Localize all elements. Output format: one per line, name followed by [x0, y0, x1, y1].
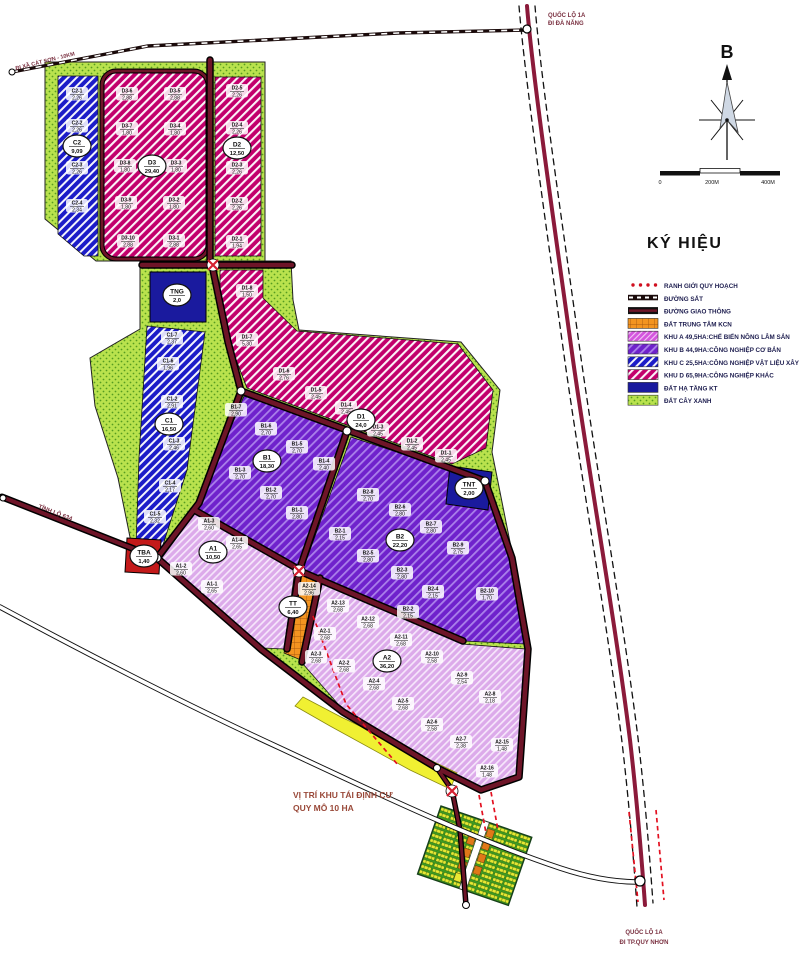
svg-text:24,0: 24,0 — [355, 423, 366, 429]
junction-x-marker — [293, 565, 305, 577]
svg-text:A1: A1 — [209, 546, 218, 553]
svg-text:2,17: 2,17 — [165, 488, 175, 494]
svg-text:2,26: 2,26 — [72, 170, 82, 176]
svg-text:2,0: 2,0 — [173, 298, 181, 304]
parcel-label-D1-1: D1-12,45 — [435, 449, 457, 464]
parcel-label-A2-9: A2-92,54 — [451, 671, 473, 686]
svg-text:D1-6: D1-6 — [279, 369, 290, 375]
svg-text:36,20: 36,20 — [380, 664, 395, 670]
svg-text:A2-1: A2-1 — [320, 629, 331, 635]
svg-text:2,91: 2,91 — [167, 404, 177, 410]
svg-text:A2-4: A2-4 — [369, 679, 380, 685]
parcel-label-A2-4: A2-42,68 — [363, 677, 385, 692]
svg-text:A1-3: A1-3 — [204, 519, 215, 525]
svg-text:1,80: 1,80 — [171, 168, 181, 174]
resettlement-annotation: VỊ TRÍ KHU TÁI ĐỊNH CƯ QUY MÔ 10 HA — [293, 790, 394, 813]
svg-text:2,80: 2,80 — [426, 529, 436, 535]
svg-text:A2-9: A2-9 — [457, 673, 468, 679]
svg-text:B2-2: B2-2 — [403, 607, 414, 613]
parcel-label-C2-4: C2-42,34 — [66, 199, 88, 214]
svg-text:A2-3: A2-3 — [311, 652, 322, 658]
svg-text:2,90: 2,90 — [231, 412, 241, 418]
svg-text:2,65: 2,65 — [207, 589, 217, 595]
ql1a-south-label-2: ĐI TP.QUY NHƠN — [620, 940, 669, 946]
svg-text:C1-7: C1-7 — [167, 333, 178, 339]
parcel-label-D1-5: D1-52,45 — [305, 386, 327, 401]
svg-text:B1-1: B1-1 — [292, 508, 303, 514]
zone-badge-TNT: TNT2,00 — [455, 477, 483, 499]
ql1a-south-label-1: QUỐC LỘ 1A — [625, 928, 663, 936]
legend-item-railway: ĐƯỜNG SẮT — [628, 294, 703, 303]
parcel-label-A2-3: A2-32,68 — [305, 650, 327, 665]
svg-text:1,96: 1,96 — [163, 366, 173, 372]
svg-text:D2-4: D2-4 — [232, 123, 243, 129]
parcel-label-A2-6: A2-62,58 — [421, 718, 443, 733]
legend-item-boundary: RANH GIỚI QUY HOẠCH — [631, 281, 738, 290]
parcel-label-B2-6: B2-62,80 — [389, 503, 411, 518]
scale-bar: 0 200M 400M — [658, 169, 780, 187]
legend-item-infra: ĐẤT HẠ TẦNG KT — [628, 382, 718, 392]
svg-text:2,54: 2,54 — [457, 680, 467, 686]
legend-item-label: ĐƯỜNG GIAO THÔNG — [664, 307, 731, 316]
legend-item-label: KHU A 49,5HA:CHẾ BIẾN NÔNG LÂM SẢN — [664, 331, 790, 341]
parcel-label-A2-15: A2-151,48 — [491, 738, 513, 753]
svg-text:2,68: 2,68 — [363, 624, 373, 630]
parcel-label-A2-5: A2-52,68 — [392, 697, 414, 712]
parcel-label-D2-4: D2-42,26 — [226, 121, 248, 136]
svg-text:C2-3: C2-3 — [72, 163, 83, 169]
svg-text:2,45: 2,45 — [373, 432, 383, 438]
svg-text:2,88: 2,88 — [170, 96, 180, 102]
parcel-label-C1-2: C1-22,91 — [161, 395, 183, 410]
svg-text:1,94: 1,94 — [232, 244, 242, 250]
svg-text:A1-1: A1-1 — [207, 582, 218, 588]
parcel-label-A2-11: A2-112,68 — [390, 633, 412, 648]
svg-text:D3-5: D3-5 — [170, 89, 181, 95]
svg-text:22,20: 22,20 — [393, 543, 408, 549]
svg-text:2,68: 2,68 — [396, 642, 406, 648]
svg-text:A2-8: A2-8 — [485, 692, 496, 698]
parcel-label-A2-7: A2-72,38 — [450, 735, 472, 750]
svg-text:2,88: 2,88 — [123, 243, 133, 249]
parcel-label-B1-3: B1-32,70 — [229, 466, 251, 481]
parcel-label-C1-3: C1-32,46 — [163, 437, 185, 452]
svg-text:D1-7: D1-7 — [242, 335, 253, 341]
legend-item-zoneB: KHU B 44,9HA:CÔNG NGHIỆP CƠ BẢN — [628, 344, 781, 354]
parcel-label-D2-5: D2-52,26 — [226, 84, 248, 99]
legend-item-label: KHU C 25,5HA:CÔNG NGHIỆP VẬT LIỆU XÂY DỰ… — [664, 358, 800, 367]
annotation-line-1: VỊ TRÍ KHU TÁI ĐỊNH CƯ — [293, 790, 394, 800]
svg-text:2,68: 2,68 — [333, 608, 343, 614]
svg-text:D3-7: D3-7 — [122, 124, 133, 130]
svg-text:2,70: 2,70 — [266, 495, 276, 501]
svg-text:2,80: 2,80 — [395, 512, 405, 518]
parcel-label-A2-1: A2-12,68 — [314, 627, 336, 642]
legend-item-road: ĐƯỜNG GIAO THÔNG — [628, 307, 731, 316]
parcel-label-D1-7: D1-75,30 — [236, 333, 258, 348]
svg-text:B2: B2 — [396, 534, 405, 541]
svg-text:2,46: 2,46 — [169, 446, 179, 452]
svg-text:A2-10: A2-10 — [425, 652, 439, 658]
parcel-label-D1-2: D1-22,45 — [401, 437, 423, 452]
legend-item-label: RANH GIỚI QUY HOẠCH — [664, 281, 738, 290]
svg-text:A2-15: A2-15 — [495, 740, 509, 746]
svg-text:2,70: 2,70 — [261, 431, 271, 437]
svg-text:A2-12: A2-12 — [361, 617, 375, 623]
svg-text:10,50: 10,50 — [206, 555, 221, 561]
svg-text:2,76: 2,76 — [279, 376, 289, 382]
svg-text:TBA: TBA — [137, 550, 151, 557]
parcel-label-A1-2: A1-22,60 — [170, 562, 192, 577]
svg-text:B1-2: B1-2 — [266, 488, 277, 494]
map-canvas: C2-12,26C2-22,26C2-32,26C2-42,34D3-62,88… — [0, 0, 800, 976]
svg-text:A1-4: A1-4 — [232, 538, 243, 544]
svg-text:C1-3: C1-3 — [169, 439, 180, 445]
svg-text:C2: C2 — [73, 140, 82, 147]
svg-text:2,26: 2,26 — [232, 170, 242, 176]
svg-text:2,37: 2,37 — [167, 340, 177, 346]
junction-x-marker — [207, 259, 219, 271]
parcel-label-B2-8: B2-82,70 — [357, 488, 379, 503]
parcel-label-B1-6: B1-62,70 — [255, 422, 277, 437]
parcel-label-B1-1: B1-12,80 — [286, 506, 308, 521]
svg-text:1,50: 1,50 — [242, 293, 252, 299]
parcel-label-B1-4: B1-42,40 — [313, 457, 335, 472]
compass-arrowhead — [722, 64, 732, 80]
svg-text:1,70: 1,70 — [482, 596, 492, 602]
svg-text:B2-1: B2-1 — [335, 529, 346, 535]
compass-star — [720, 82, 738, 132]
svg-text:1,80: 1,80 — [120, 168, 130, 174]
parcel-label-B2-4: B2-42,15 — [422, 585, 444, 600]
legend-item-label: KHU B 44,9HA:CÔNG NGHIỆP CƠ BẢN — [664, 345, 781, 354]
svg-text:2,40: 2,40 — [319, 466, 329, 472]
svg-text:2,80: 2,80 — [397, 575, 407, 581]
svg-text:C2-2: C2-2 — [72, 121, 83, 127]
parcel-label-A1-3: A1-32,60 — [198, 517, 220, 532]
legend: KÝ HIỆU RANH GIỚI QUY HOẠCHĐƯỜNG SẮTĐƯỜN… — [628, 233, 800, 405]
svg-text:C1-6: C1-6 — [163, 359, 174, 365]
svg-text:29,40: 29,40 — [145, 169, 160, 175]
svg-text:2,68: 2,68 — [311, 659, 321, 665]
parcel-label-D3-3: D3-31,80 — [165, 159, 187, 174]
svg-text:2,26: 2,26 — [232, 93, 242, 99]
svg-text:2,60: 2,60 — [204, 526, 214, 532]
legend-item-label: ĐƯỜNG SẮT — [664, 294, 703, 303]
svg-text:A2-2: A2-2 — [339, 661, 350, 667]
parcel-label-D1-8: D1-81,50 — [236, 284, 258, 299]
legend-title: KÝ HIỆU — [647, 233, 722, 252]
svg-text:D1-5: D1-5 — [311, 388, 322, 394]
svg-text:D1-8: D1-8 — [242, 286, 253, 292]
legend-item-center: ĐẤT TRUNG TÂM KCN — [628, 318, 732, 328]
svg-text:2,45: 2,45 — [441, 458, 451, 464]
parcel-label-D2-2: D2-22,26 — [226, 197, 248, 212]
svg-text:2,38: 2,38 — [456, 744, 466, 750]
svg-text:D3: D3 — [148, 160, 157, 167]
legend-item-zoneC: KHU C 25,5HA:CÔNG NGHIỆP VẬT LIỆU XÂY DỰ… — [628, 357, 800, 367]
parcel-label-C1-5: C1-52,32 — [144, 510, 166, 525]
svg-text:9,09: 9,09 — [71, 149, 83, 155]
scale-mid: 200M — [705, 180, 719, 186]
svg-text:TT: TT — [289, 601, 297, 608]
svg-text:B2-5: B2-5 — [363, 551, 374, 557]
legend-items: RANH GIỚI QUY HOẠCHĐƯỜNG SẮTĐƯỜNG GIAO T… — [628, 281, 800, 405]
svg-text:2,68: 2,68 — [398, 706, 408, 712]
svg-text:B2-7: B2-7 — [426, 522, 437, 528]
parcel-label-D3-4: D3-41,80 — [164, 122, 186, 137]
legend-item-label: ĐẤT TRUNG TÂM KCN — [664, 318, 732, 328]
svg-text:D2: D2 — [233, 142, 242, 149]
svg-text:18,30: 18,30 — [260, 464, 275, 470]
svg-text:D1-2: D1-2 — [407, 439, 418, 445]
svg-text:C1-2: C1-2 — [167, 397, 178, 403]
svg-text:A2-7: A2-7 — [456, 737, 467, 743]
svg-text:D2-2: D2-2 — [232, 199, 243, 205]
zone-badge-A2: A236,20 — [373, 650, 401, 672]
zone-badge-B2: B222,20 — [386, 529, 414, 551]
svg-text:2,26: 2,26 — [232, 206, 242, 212]
parcel-label-D2-3: D2-32,26 — [226, 161, 248, 176]
zone-badge-C2: C29,09 — [63, 135, 91, 157]
parcel-label-B2-9: B2-92,75 — [447, 541, 469, 556]
parcel-label-D3-2: D3-21,80 — [163, 196, 185, 211]
parcel-label-D3-1: D3-12,88 — [163, 234, 185, 249]
svg-text:2,70: 2,70 — [363, 497, 373, 503]
svg-text:2,96: 2,96 — [304, 591, 314, 597]
parcel-label-B2-7: B2-72,80 — [420, 520, 442, 535]
svg-text:D3-3: D3-3 — [171, 161, 182, 167]
svg-text:1,80: 1,80 — [170, 131, 180, 137]
svg-text:2,88: 2,88 — [122, 96, 132, 102]
parcel-label-D3-9: D3-91,80 — [115, 196, 137, 211]
legend-item-label: ĐẤT CÂY XANH — [664, 395, 712, 405]
svg-text:2,26: 2,26 — [72, 128, 82, 134]
svg-text:C1-4: C1-4 — [165, 481, 176, 487]
parcel-label-A2-16: A2-161,48 — [476, 764, 498, 779]
parcel-label-A2-10: A2-102,58 — [421, 650, 443, 665]
zone-badge-D3: D329,40 — [138, 155, 166, 177]
parcel-label-B1-5: B1-52,70 — [286, 440, 308, 455]
svg-text:A2: A2 — [383, 655, 392, 662]
parcel-label-B2-3: B2-32,80 — [391, 566, 413, 581]
legend-item-zoneD: KHU D 65,9HA:CÔNG NGHIỆP KHÁC — [628, 370, 774, 380]
svg-text:2,32: 2,32 — [150, 519, 160, 525]
parcel-label-C1-7: C1-72,37 — [161, 331, 183, 346]
legend-item-zoneA: KHU A 49,5HA:CHẾ BIẾN NÔNG LÂM SẢN — [628, 331, 790, 341]
parcel-label-C2-3: C2-32,26 — [66, 161, 88, 176]
svg-text:B1-5: B1-5 — [292, 442, 303, 448]
svg-text:5,30: 5,30 — [242, 342, 252, 348]
svg-text:2,26: 2,26 — [72, 96, 82, 102]
svg-text:B1-4: B1-4 — [319, 459, 330, 465]
svg-text:D3-8: D3-8 — [120, 161, 131, 167]
svg-text:D1-3: D1-3 — [373, 425, 384, 431]
parcel-label-D3-8: D3-81,80 — [114, 159, 136, 174]
zone-badge-TT: TT6,40 — [279, 596, 307, 618]
parcel-label-A1-4: A1-42,65 — [226, 536, 248, 551]
svg-text:B2-10: B2-10 — [480, 589, 494, 595]
svg-text:2,58: 2,58 — [427, 727, 437, 733]
junction-x-marker — [446, 785, 458, 797]
legend-item-label: KHU D 65,9HA:CÔNG NGHIỆP KHÁC — [664, 371, 774, 380]
svg-text:6,40: 6,40 — [287, 610, 298, 616]
svg-text:C1-5: C1-5 — [150, 512, 161, 518]
svg-text:A2-5: A2-5 — [398, 699, 409, 705]
svg-text:B2-8: B2-8 — [363, 490, 374, 496]
annotation-line-2: QUY MÔ 10 HA — [293, 802, 354, 813]
svg-text:2,15: 2,15 — [335, 536, 345, 542]
svg-text:D1: D1 — [357, 414, 366, 421]
svg-text:1,80: 1,80 — [121, 205, 131, 211]
svg-text:B2-3: B2-3 — [397, 568, 408, 574]
scale-end: 400M — [761, 180, 775, 186]
parcel-label-C1-6: C1-61,96 — [157, 357, 179, 372]
scale-zero: 0 — [658, 180, 661, 186]
svg-text:1,48: 1,48 — [497, 747, 507, 753]
parcel-label-B2-2: B2-22,15 — [397, 605, 419, 620]
svg-text:2,70: 2,70 — [235, 475, 245, 481]
svg-text:A2-16: A2-16 — [480, 766, 494, 772]
parcel-label-D2-1: D2-11,94 — [226, 235, 248, 250]
svg-text:2,80: 2,80 — [292, 515, 302, 521]
parcel-label-B1-2: B1-22,70 — [260, 486, 282, 501]
parcel-label-A1-1: A1-12,65 — [201, 580, 223, 595]
svg-text:12,50: 12,50 — [230, 151, 245, 157]
svg-text:B2-4: B2-4 — [428, 587, 439, 593]
svg-text:D2-3: D2-3 — [232, 163, 243, 169]
parcel-label-C2-1: C2-12,26 — [66, 87, 88, 102]
svg-text:A2-11: A2-11 — [394, 635, 408, 641]
svg-text:2,68: 2,68 — [339, 668, 349, 674]
ql1a-north-label-1: QUỐC LỘ 1A — [548, 11, 586, 19]
svg-text:B1: B1 — [263, 455, 272, 462]
svg-text:2,68: 2,68 — [369, 686, 379, 692]
ql1a-north-label-2: ĐI ĐÀ NẴNG — [548, 20, 584, 27]
svg-text:A2-14: A2-14 — [302, 584, 316, 590]
legend-item-green: ĐẤT CÂY XANH — [628, 395, 712, 405]
svg-text:2,18: 2,18 — [485, 699, 495, 705]
parcel-label-D1-6: D1-62,76 — [273, 367, 295, 382]
svg-text:2,58: 2,58 — [427, 659, 437, 665]
zone-badge-D1: D124,0 — [347, 409, 375, 431]
svg-text:2,75: 2,75 — [453, 550, 463, 556]
parcel-label-D3-7: D3-71,80 — [116, 122, 138, 137]
svg-text:A1-2: A1-2 — [176, 564, 187, 570]
svg-text:2,15: 2,15 — [403, 614, 413, 620]
svg-text:A2-13: A2-13 — [331, 601, 345, 607]
svg-text:1,80: 1,80 — [169, 205, 179, 211]
svg-text:D3-1: D3-1 — [169, 236, 180, 242]
parcel-label-D3-10: D3-102,88 — [117, 234, 139, 249]
parcel-label-A2-12: A2-122,68 — [357, 615, 379, 630]
svg-text:2,88: 2,88 — [169, 243, 179, 249]
svg-text:C2-1: C2-1 — [72, 89, 83, 95]
svg-text:D3-2: D3-2 — [169, 198, 180, 204]
parcel-label-C1-4: C1-42,17 — [159, 479, 181, 494]
svg-text:2,00: 2,00 — [463, 491, 474, 497]
svg-text:D3-9: D3-9 — [121, 198, 132, 204]
svg-text:D2-1: D2-1 — [232, 237, 243, 243]
parcel-label-B2-1: B2-12,15 — [329, 527, 351, 542]
svg-text:2,34: 2,34 — [72, 208, 82, 214]
svg-text:2,80: 2,80 — [363, 558, 373, 564]
svg-text:1,80: 1,80 — [122, 131, 132, 137]
parcel-label-C2-2: C2-22,26 — [66, 119, 88, 134]
svg-text:A2-6: A2-6 — [427, 720, 438, 726]
zone-badge-C1: C116,50 — [155, 413, 183, 435]
svg-text:2,45: 2,45 — [407, 446, 417, 452]
svg-text:B1-6: B1-6 — [261, 424, 272, 430]
parcel-label-A2-2: A2-22,68 — [333, 659, 355, 674]
svg-text:B1-7: B1-7 — [231, 405, 242, 411]
svg-text:D3-10: D3-10 — [121, 236, 135, 242]
svg-text:D3-4: D3-4 — [170, 124, 181, 130]
zone-badge-D2: D212,50 — [223, 137, 251, 159]
zone-badge-B1: B118,30 — [253, 450, 281, 472]
svg-text:B2-9: B2-9 — [453, 543, 464, 549]
svg-text:D2-5: D2-5 — [232, 86, 243, 92]
planning-map: C2-12,26C2-22,26C2-32,26C2-42,34D3-62,88… — [0, 0, 800, 976]
parcel-label-A2-13: A2-132,68 — [327, 599, 349, 614]
svg-text:2,26: 2,26 — [232, 130, 242, 136]
compass-rose: B — [699, 42, 755, 160]
svg-text:D3-6: D3-6 — [122, 89, 133, 95]
svg-text:TNT: TNT — [463, 482, 476, 489]
zone-badge-TBA: TBA1,40 — [130, 545, 158, 567]
svg-text:B1-3: B1-3 — [235, 468, 246, 474]
svg-text:2,65: 2,65 — [232, 545, 242, 551]
svg-text:2,45: 2,45 — [311, 395, 321, 401]
parcel-label-D3-6: D3-62,88 — [116, 87, 138, 102]
svg-text:16,50: 16,50 — [162, 427, 177, 433]
parcel-label-B1-7: B1-72,90 — [225, 403, 247, 418]
parcel-label-A2-8: A2-82,18 — [479, 690, 501, 705]
svg-text:2,70: 2,70 — [292, 449, 302, 455]
zone-badge-TNG: TNG2,0 — [163, 284, 191, 306]
parcel-label-A2-14: A2-142,96 — [298, 582, 320, 597]
svg-text:D1-4: D1-4 — [341, 403, 352, 409]
compass-north-label: B — [721, 42, 734, 62]
svg-text:1,48: 1,48 — [482, 773, 492, 779]
zone-badge-A1: A110,50 — [199, 541, 227, 563]
parcel-label-B2-10: B2-101,70 — [476, 587, 498, 602]
svg-text:C1: C1 — [165, 418, 174, 425]
svg-text:B2-6: B2-6 — [395, 505, 406, 511]
svg-text:2,15: 2,15 — [428, 594, 438, 600]
legend-item-label: ĐẤT HẠ TẦNG KT — [664, 382, 718, 392]
svg-text:TNG: TNG — [170, 289, 184, 296]
svg-text:C2-4: C2-4 — [72, 201, 83, 207]
svg-text:2,60: 2,60 — [176, 571, 186, 577]
parcel-label-B2-5: B2-52,80 — [357, 549, 379, 564]
svg-text:1,40: 1,40 — [138, 559, 149, 565]
parcel-label-D3-5: D3-52,88 — [164, 87, 186, 102]
svg-text:2,68: 2,68 — [320, 636, 330, 642]
svg-text:D1-1: D1-1 — [441, 451, 452, 457]
